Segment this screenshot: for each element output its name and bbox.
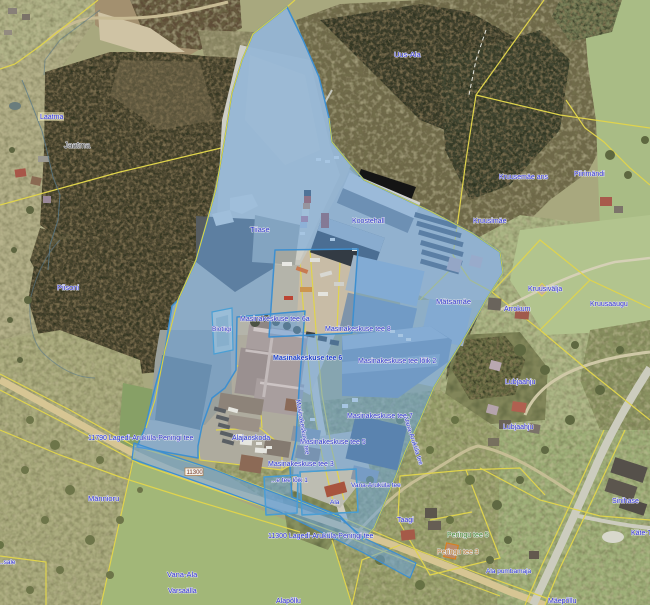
svg-text:Varsaälla: Varsaälla	[168, 588, 197, 595]
svg-text:Masinakeskuse tee 6a: Masinakeskuse tee 6a	[240, 316, 310, 323]
svg-text:Taagi: Taagi	[397, 517, 414, 524]
svg-text:11300: 11300	[187, 470, 204, 476]
svg-text:Kruusaaugu: Kruusaaugu	[590, 301, 628, 308]
svg-text:..sale: ..sale	[0, 559, 16, 566]
svg-text:Masinakeskuse tee 3: Masinakeskuse tee 3	[268, 461, 334, 468]
svg-text:Masinakeskuse tee 6: Masinakeskuse tee 6	[273, 355, 342, 362]
svg-text:Vana-Aruküla tee: Vana-Aruküla tee	[351, 482, 401, 489]
svg-text:Mätsamäe: Mätsamäe	[436, 297, 471, 306]
svg-text:Lubjaahju: Lubjaahju	[503, 424, 533, 431]
svg-text:Vana-Ala: Vana-Ala	[167, 570, 198, 579]
svg-text:Alapõllu: Alapõllu	[276, 598, 301, 605]
svg-text:11300 Lagedi-Aruküla-Peningi t: 11300 Lagedi-Aruküla-Peningi tee	[268, 533, 373, 540]
svg-text:Kruusemäe ans: Kruusemäe ans	[499, 174, 549, 181]
svg-text:Jaatma: Jaatma	[64, 141, 91, 150]
svg-text:Mäepõllu: Mäepõllu	[548, 598, 577, 605]
svg-text:Peringu tee 3: Peringu tee 3	[437, 549, 479, 556]
svg-text:Käte-T: Käte-T	[631, 530, 650, 537]
svg-text:Uus-Ala: Uus-Ala	[394, 50, 422, 59]
svg-text:Piirimändi: Piirimändi	[574, 171, 605, 178]
svg-text:Ala: Ala	[330, 499, 340, 506]
svg-text:Tiiase: Tiiase	[250, 225, 270, 234]
svg-text:11790 Lagedi-Aruküla-Peningi t: 11790 Lagedi-Aruküla-Peningi tee	[88, 435, 193, 442]
svg-text:Lubjaahju: Lubjaahju	[505, 379, 535, 386]
svg-text:Männioru: Männioru	[88, 494, 119, 503]
svg-text:Masinakeskuse tee 8: Masinakeskuse tee 8	[325, 326, 391, 333]
svg-text:Kruusivälja: Kruusivälja	[528, 286, 562, 293]
svg-text:Laatma: Laatma	[40, 114, 63, 121]
svg-text:Arrokum: Arrokum	[504, 306, 531, 313]
svg-text:Sinihase: Sinihase	[612, 498, 639, 505]
svg-text:Ala pumbamaja: Ala pumbamaja	[486, 568, 532, 575]
svg-text:Biotiigi: Biotiigi	[212, 326, 231, 333]
svg-text:...e tee lõik 1: ...e tee lõik 1	[271, 477, 308, 484]
svg-text:Kruusimäe: Kruusimäe	[473, 218, 507, 225]
svg-text:Koostehall: Koostehall	[352, 218, 385, 225]
svg-text:Alajaoskoda: Alajaoskoda	[232, 435, 270, 442]
svg-text:Peringu tee 5: Peringu tee 5	[447, 532, 489, 539]
svg-text:Piisoni: Piisoni	[57, 283, 79, 292]
svg-text:Masinakeskuse tee lõik 2: Masinakeskuse tee lõik 2	[358, 358, 436, 365]
